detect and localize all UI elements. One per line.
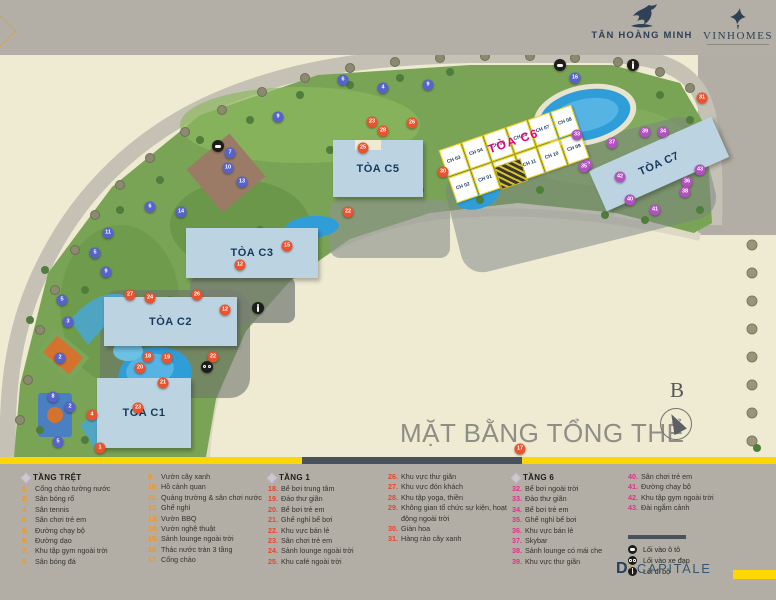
- dcapitale-logo: D’.CAPITALE: [616, 560, 712, 578]
- legend-item: 9.Vườn cây xanh: [148, 472, 266, 482]
- amenity-marker: 27: [125, 290, 136, 301]
- legend-item-number: 4.: [22, 515, 35, 525]
- legend-item: 38.Sảnh lounge có mái che: [512, 546, 626, 556]
- legend-entry: Lối vào ô tô: [628, 545, 680, 554]
- car-entry-icon: [554, 59, 566, 71]
- amenity-marker: 16: [570, 73, 581, 84]
- legend-item-label: Bể bơi trẻ em: [525, 505, 626, 515]
- amenity-marker: 5: [53, 437, 64, 448]
- legend-item-label: Khu vực thư giãn: [401, 472, 510, 482]
- tree-icon: [747, 380, 757, 390]
- legend-item-number: 30.: [388, 524, 401, 534]
- legend-item-number: 15.: [148, 534, 161, 544]
- legend-item: 15.Sảnh lounge ngoài trời: [148, 534, 266, 544]
- amenity-marker: 25: [358, 143, 369, 154]
- amenity-marker: 10: [223, 163, 234, 174]
- legend-item-label: Giàn hoa: [401, 524, 510, 534]
- legend-item: 21.Ghế nghỉ bể bơi: [268, 515, 386, 525]
- amenity-marker: 34: [658, 127, 669, 138]
- legend-item-label: Sảnh lounge có mái che: [525, 546, 626, 556]
- tree-icon: [446, 68, 454, 76]
- amenity-marker: 2: [65, 402, 76, 413]
- legend-item: 23.Sân chơi trẻ em: [268, 536, 386, 546]
- dcapitale-logo-text: .CAPITALE: [632, 561, 712, 576]
- tree-icon: [36, 326, 45, 335]
- legend-item: 41.Đường chạy bộ: [628, 482, 776, 492]
- amenity-marker: 28: [378, 126, 389, 137]
- tree-icon: [696, 206, 704, 214]
- legend-item-label: Khu vực đón khách: [401, 482, 510, 492]
- tree-icon: [686, 84, 695, 93]
- legend-item: 40.Sân chơi trẻ em: [628, 472, 776, 482]
- building-c7-label: TÒA C7: [637, 150, 681, 178]
- legend-divider-bar: [628, 535, 686, 539]
- legend-item-number: 7.: [22, 546, 35, 556]
- legend-header: TẦNG 6: [512, 472, 626, 483]
- tan-hoang-minh-logo: TÂN HOÀNG MINH: [583, 4, 701, 41]
- amenity-marker: 6: [145, 202, 156, 213]
- legend-item-label: Bể bơi trung tâm: [281, 484, 386, 494]
- legend-item: 37.Skybar: [512, 536, 626, 546]
- legend-item: 39.Khu vực thư giãn: [512, 557, 626, 567]
- tree-icon: [26, 316, 34, 324]
- legend-item-label: Đảo thư giãn: [525, 494, 626, 504]
- legend-item-label: Đường chạy bộ: [641, 482, 776, 492]
- legend-item-label: Sảnh lounge ngoài trời: [281, 546, 386, 556]
- site-plan-page: { "header": { "thm_logo": "TÂN HOÀNG MIN…: [0, 0, 776, 600]
- legend-item: 30.Giàn hoa: [388, 524, 510, 534]
- legend-item: 14.Vườn nghệ thuật: [148, 524, 266, 534]
- vinhomes-logo-rule: [707, 44, 769, 45]
- amenity-marker: 22: [343, 207, 354, 218]
- legend-item: 42.Khu tập gym ngoài trời: [628, 493, 776, 503]
- building-c3: TÒA C3: [186, 228, 318, 278]
- compass-north-label: B: [670, 378, 684, 403]
- tree-icon: [196, 136, 204, 144]
- building-c3-label: TÒA C3: [231, 247, 274, 259]
- legend-item-label: Hàng rào cây xanh: [401, 534, 510, 544]
- diamond-icon: [20, 472, 31, 483]
- tree-icon: [36, 426, 44, 434]
- bicycle-entry-icon: [201, 361, 213, 373]
- legend-item: 28.Khu tập yoga, thiền: [388, 493, 510, 503]
- legend-item-label: Vườn BBQ: [161, 514, 266, 524]
- dcapitale-logo-d: D: [616, 560, 628, 578]
- site-plan-map: TÒA C1 TÒA C2 TÒA C3 TÒA C5 TÒA C7 CH 03…: [0, 0, 776, 457]
- legend-item: 7.Khu tập gym ngoài trời: [22, 546, 144, 556]
- legend-item: 43.Đài ngắm cảnh: [628, 503, 776, 513]
- legend-item-number: 32.: [512, 484, 525, 494]
- tree-icon: [24, 376, 33, 385]
- legend-item-label: Ghế nghỉ bể bơi: [525, 515, 626, 525]
- legend-item-label: Bể bơi ngoài trời: [525, 484, 626, 494]
- legend-item-number: 42.: [628, 493, 641, 503]
- legend-item: 11.Quảng trường & sân chơi nước: [148, 493, 266, 503]
- legend-item: 13.Vườn BBQ: [148, 514, 266, 524]
- legend-item: 32.Bể bơi ngoài trời: [512, 484, 626, 494]
- amenity-marker: 14: [176, 207, 187, 218]
- swallow-bird-icon: [728, 8, 748, 30]
- legend-item: 8.Sân bóng đá: [22, 557, 144, 567]
- tree-icon: [16, 416, 25, 425]
- legend-item-number: 39.: [512, 557, 525, 567]
- plan-title: MẶT BẰNG TỔNG THỂ: [400, 418, 684, 449]
- amenity-marker: 37: [607, 138, 618, 149]
- legend-item-number: 6.: [22, 536, 35, 546]
- legend-item: 27.Khu vực đón khách: [388, 482, 510, 492]
- tree-icon: [656, 68, 665, 77]
- legend-item: 33.Đảo thư giãn: [512, 494, 626, 504]
- tree-icon: [146, 154, 155, 163]
- legend-header: TẦNG TRỆT: [22, 472, 144, 483]
- legend-item-number: 17.: [148, 555, 161, 565]
- legend-item-label: Ghế nghỉ bể bơi: [281, 515, 386, 525]
- legend-item-number: 14.: [148, 524, 161, 534]
- legend-item: 20.Bể bơi trẻ em: [268, 505, 386, 515]
- legend-item: 18.Bể bơi trung tâm: [268, 484, 386, 494]
- legend-item-number: 11.: [148, 493, 161, 503]
- legend-item-number: 35.: [512, 515, 525, 525]
- entry-marker: [554, 59, 566, 71]
- legend-item-label: Sảnh lounge ngoài trời: [161, 534, 266, 544]
- amenity-marker: 21: [158, 378, 169, 389]
- entry-marker: [252, 302, 264, 314]
- amenity-marker: 12: [235, 260, 246, 271]
- amenity-marker: 6: [338, 75, 349, 86]
- legend-item-number: 12.: [148, 503, 161, 513]
- legend-item-label: Sân bóng đá: [35, 557, 144, 567]
- capitale-diamond-icon: [0, 15, 17, 46]
- pedestrian-entry-icon: [627, 59, 639, 71]
- entry-marker: [627, 59, 639, 71]
- legend-item-number: 21.: [268, 515, 281, 525]
- legend-entry-label: Lối vào ô tô: [643, 545, 680, 554]
- legend-item-number: 34.: [512, 505, 525, 515]
- legend-item: 6.Đường dạo: [22, 536, 144, 546]
- legend-item-label: Vườn cây xanh: [161, 472, 266, 482]
- amenity-marker: 43: [695, 165, 706, 176]
- amenity-marker: 2: [55, 353, 66, 364]
- legend-item-number: 33.: [512, 494, 525, 504]
- legend-item: 36.Khu vực bán lẻ: [512, 526, 626, 536]
- amenity-marker: 5: [57, 295, 68, 306]
- legend-column: TẦNG 632.Bể bơi ngoài trời33.Đảo thư giã…: [512, 472, 626, 567]
- legend-header-label: TẦNG 1: [279, 473, 310, 482]
- legend-item-label: Hồ cảnh quan: [161, 482, 266, 492]
- amenity-marker: 23: [367, 117, 378, 128]
- tree-icon: [747, 352, 757, 362]
- tree-icon: [91, 211, 100, 220]
- tree-icon: [686, 116, 694, 124]
- legend-item-label: Đảo thư giãn: [281, 494, 386, 504]
- amenity-marker: 41: [650, 205, 661, 216]
- tree-icon: [436, 55, 445, 63]
- diamond-icon: [266, 472, 277, 483]
- amenity-marker: 35: [579, 162, 590, 173]
- legend-item-label: Khu vực bán lẻ: [281, 526, 386, 536]
- legend-column: 40.Sân chơi trẻ em41.Đường chạy bộ42.Khu…: [628, 472, 776, 514]
- pedestrian-entry-icon: [252, 302, 264, 314]
- amenity-marker: 12: [220, 305, 231, 316]
- legend-item-label: Đường chạy bộ: [35, 526, 144, 536]
- legend-item-label: Sân chơi trẻ em: [281, 536, 386, 546]
- tree-icon: [747, 296, 757, 306]
- legend-item-label: Sân chơi trẻ em: [35, 515, 144, 525]
- tree-icon: [218, 106, 227, 115]
- car-entry-icon: [628, 545, 637, 554]
- building-c2-label: TÒA C2: [149, 316, 192, 328]
- amenity-marker: 1: [95, 443, 106, 454]
- legend-item-number: 20.: [268, 505, 281, 515]
- amenity-marker: 40: [625, 195, 636, 206]
- amenity-marker: 11: [103, 228, 114, 239]
- legend-column: 9.Vườn cây xanh10.Hồ cảnh quan11.Quảng t…: [148, 472, 266, 566]
- legend-item-label: Đường dạo: [35, 536, 144, 546]
- legend-item-number: 23.: [268, 536, 281, 546]
- tree-icon: [301, 74, 310, 83]
- amenity-marker: 9: [101, 267, 112, 278]
- legend-item-label: Thác nước tràn 3 tầng: [161, 545, 266, 555]
- tree-icon: [258, 88, 267, 97]
- legend-item-label: Cổng chào: [161, 555, 266, 565]
- tree-icon: [71, 246, 80, 255]
- amenity-marker: 4: [378, 83, 389, 94]
- tree-icon: [481, 55, 490, 61]
- legend-item-number: 18.: [268, 484, 281, 494]
- legend-item-number: 40.: [628, 472, 641, 482]
- legend-item-number: 16.: [148, 545, 161, 555]
- legend-item-label: Khu vực thư giãn: [525, 557, 626, 567]
- legend-item-number: 28.: [388, 493, 401, 503]
- tree-icon: [296, 91, 304, 99]
- legend-item: 10.Hồ cảnh quan: [148, 482, 266, 492]
- tree-icon: [536, 186, 544, 194]
- tan-hoang-minh-logo-text: TÂN HOÀNG MINH: [583, 30, 701, 41]
- legend-item-number: 5.: [22, 526, 35, 536]
- tree-icon: [396, 74, 404, 82]
- legend-header-label: TẦNG TRỆT: [33, 473, 81, 482]
- amenity-marker: 26: [407, 118, 418, 129]
- entry-marker: [212, 140, 224, 152]
- tree-icon: [753, 444, 761, 452]
- amenity-marker: 4: [87, 410, 98, 421]
- legend-item-number: 8.: [22, 557, 35, 567]
- tree-icon: [41, 266, 49, 274]
- tree-icon: [601, 211, 609, 219]
- tree-icon: [156, 176, 164, 184]
- legend-item: 31.Hàng rào cây xanh: [388, 534, 510, 544]
- tree-icon: [81, 286, 89, 294]
- tree-icon: [346, 64, 355, 73]
- north-arrow-icon: [665, 411, 687, 435]
- amenity-marker: 26: [192, 290, 203, 301]
- amenity-marker: 3: [63, 317, 74, 328]
- amenity-marker: 24: [145, 293, 156, 304]
- legend-item-label: Bể bơi trẻ em: [281, 505, 386, 515]
- tree-icon: [747, 408, 757, 418]
- diamond-icon: [510, 472, 521, 483]
- legend-item-label: Vườn nghệ thuật: [161, 524, 266, 534]
- amenity-marker: 39: [640, 127, 651, 138]
- legend-item-label: Không gian tổ chức sự kiện, hoạt động ng…: [401, 503, 510, 524]
- tree-icon: [614, 58, 623, 67]
- amenity-marker: 9: [273, 112, 284, 123]
- tree-icon: [116, 181, 125, 190]
- legend-item-label: Cổng chào tường nước: [35, 484, 144, 494]
- legend-item-label: Skybar: [525, 536, 626, 546]
- legend-item-number: 41.: [628, 482, 641, 492]
- legend-item: 19.Đảo thư giãn: [268, 494, 386, 504]
- legend-item: 12.Ghế nghỉ: [148, 503, 266, 513]
- legend-column: 26.Khu vực thư giãn27.Khu vực đón khách2…: [388, 472, 510, 545]
- amenity-marker: 42: [615, 172, 626, 183]
- tree-icon: [116, 206, 124, 214]
- legend-header: TẦNG 1: [268, 472, 386, 483]
- tree-icon: [656, 91, 664, 99]
- legend-item-number: 36.: [512, 526, 525, 536]
- legend-item-number: 27.: [388, 482, 401, 492]
- car-entry-icon-glyph: [628, 545, 637, 554]
- legend-item: 26.Khu vực thư giãn: [388, 472, 510, 482]
- vinhomes-logo: VINHOMES: [702, 8, 774, 45]
- building-c1-label: TÒA C1: [123, 407, 166, 419]
- legend-item-number: 3.: [22, 505, 35, 515]
- amenity-marker: 15: [282, 241, 293, 252]
- legend-item-label: Quảng trường & sân chơi nước: [161, 493, 266, 503]
- legend-item: 1.Cổng chào tường nước: [22, 484, 144, 494]
- legend-item-label: Ghế nghỉ: [161, 503, 266, 513]
- legend-item-label: Khu vực bán lẻ: [525, 526, 626, 536]
- amenity-marker: 8: [48, 392, 59, 403]
- amenity-marker: 30: [438, 167, 449, 178]
- legend-item-label: Sân bóng rổ: [35, 494, 144, 504]
- legend-item-number: 22.: [268, 526, 281, 536]
- car-entry-icon: [212, 140, 224, 152]
- tree-icon: [641, 216, 649, 224]
- building-c2: TÒA C2: [104, 297, 237, 346]
- amenity-marker: 31: [697, 93, 708, 104]
- legend-item-number: 9.: [148, 472, 161, 482]
- legend-column: TẦNG TRỆT1.Cổng chào tường nước2.Sân bón…: [22, 472, 144, 567]
- vinhomes-logo-text: VINHOMES: [702, 30, 774, 42]
- compass-icon: [660, 408, 692, 440]
- building-c5-label: TÒA C5: [357, 163, 400, 175]
- legend-item-number: 24.: [268, 546, 281, 556]
- tree-icon: [747, 240, 757, 250]
- tree-icon: [81, 436, 89, 444]
- legend-item-label: Sân tennis: [35, 505, 144, 515]
- legend-item: 3.Sân tennis: [22, 505, 144, 515]
- amenity-marker: 38: [680, 187, 691, 198]
- legend-item: 5.Đường chạy bộ: [22, 526, 144, 536]
- legend-item-number: 43.: [628, 503, 641, 513]
- tree-icon: [181, 128, 190, 137]
- legend-item: 16.Thác nước tràn 3 tầng: [148, 545, 266, 555]
- amenity-marker: 33: [572, 130, 583, 141]
- legend-item: 2.Sân bóng rổ: [22, 494, 144, 504]
- legend-header-label: TẦNG 6: [523, 473, 554, 482]
- amenity-marker: 19: [162, 353, 173, 364]
- tree-icon: [476, 196, 484, 204]
- legend-item: 24.Sảnh lounge ngoài trời: [268, 546, 386, 556]
- legend-item: 25.Khu café ngoài trời: [268, 557, 386, 567]
- legend-item-number: 1.: [22, 484, 35, 494]
- legend-item-number: 37.: [512, 536, 525, 546]
- legend-column: TẦNG 118.Bể bơi trung tâm19.Đảo thư giãn…: [268, 472, 386, 567]
- entry-marker: [201, 361, 213, 373]
- tree-icon: [747, 268, 757, 278]
- legend-item-number: 38.: [512, 546, 525, 556]
- legend-item: 35.Ghế nghỉ bể bơi: [512, 515, 626, 525]
- legend-item-number: 2.: [22, 494, 35, 504]
- divider-slate-bar: [302, 457, 522, 464]
- legend-item: 4.Sân chơi trẻ em: [22, 515, 144, 525]
- tree-icon: [246, 116, 254, 124]
- legend-item-number: 26.: [388, 472, 401, 482]
- phoenix-bird-icon: [627, 4, 657, 30]
- legend-item-label: Khu tập gym ngoài trời: [641, 493, 776, 503]
- legend-item: 22.Khu vực bán lẻ: [268, 526, 386, 536]
- amenity-marker: 9: [423, 80, 434, 91]
- tree-icon: [571, 55, 580, 63]
- amenity-marker: 18: [143, 352, 154, 363]
- amenity-marker: 7: [225, 148, 236, 159]
- amenity-marker: 5: [90, 248, 101, 259]
- legend-item-label: Khu tập yoga, thiền: [401, 493, 510, 503]
- legend-panel: TẦNG TRỆT1.Cổng chào tường nước2.Sân bón…: [0, 464, 776, 600]
- legend-item-label: Đài ngắm cảnh: [641, 503, 776, 513]
- legend-item-label: Sân chơi trẻ em: [641, 472, 776, 482]
- legend-item-number: 29.: [388, 503, 401, 524]
- tree-icon: [391, 58, 400, 67]
- legend-item-number: 31.: [388, 534, 401, 544]
- amenity-marker: 20: [135, 363, 146, 374]
- brand-yellow-bar: [733, 570, 776, 579]
- legend-item-number: 25.: [268, 557, 281, 567]
- legend-item: 17.Cổng chào: [148, 555, 266, 565]
- building-c1: TÒA C1: [97, 378, 191, 448]
- amenity-marker: 13: [237, 177, 248, 188]
- amenity-marker: 23: [133, 403, 144, 414]
- legend-item-label: Khu café ngoài trời: [281, 557, 386, 567]
- legend-item: 29.Không gian tổ chức sự kiện, hoạt động…: [388, 503, 510, 524]
- tree-icon: [747, 324, 757, 334]
- legend-item-number: 10.: [148, 482, 161, 492]
- legend-item-number: 13.: [148, 514, 161, 524]
- legend-item-number: 19.: [268, 494, 281, 504]
- legend-item: 34.Bể bơi trẻ em: [512, 505, 626, 515]
- tree-icon: [526, 55, 535, 61]
- tree-icon: [51, 286, 60, 295]
- legend-item-label: Khu tập gym ngoài trời: [35, 546, 144, 556]
